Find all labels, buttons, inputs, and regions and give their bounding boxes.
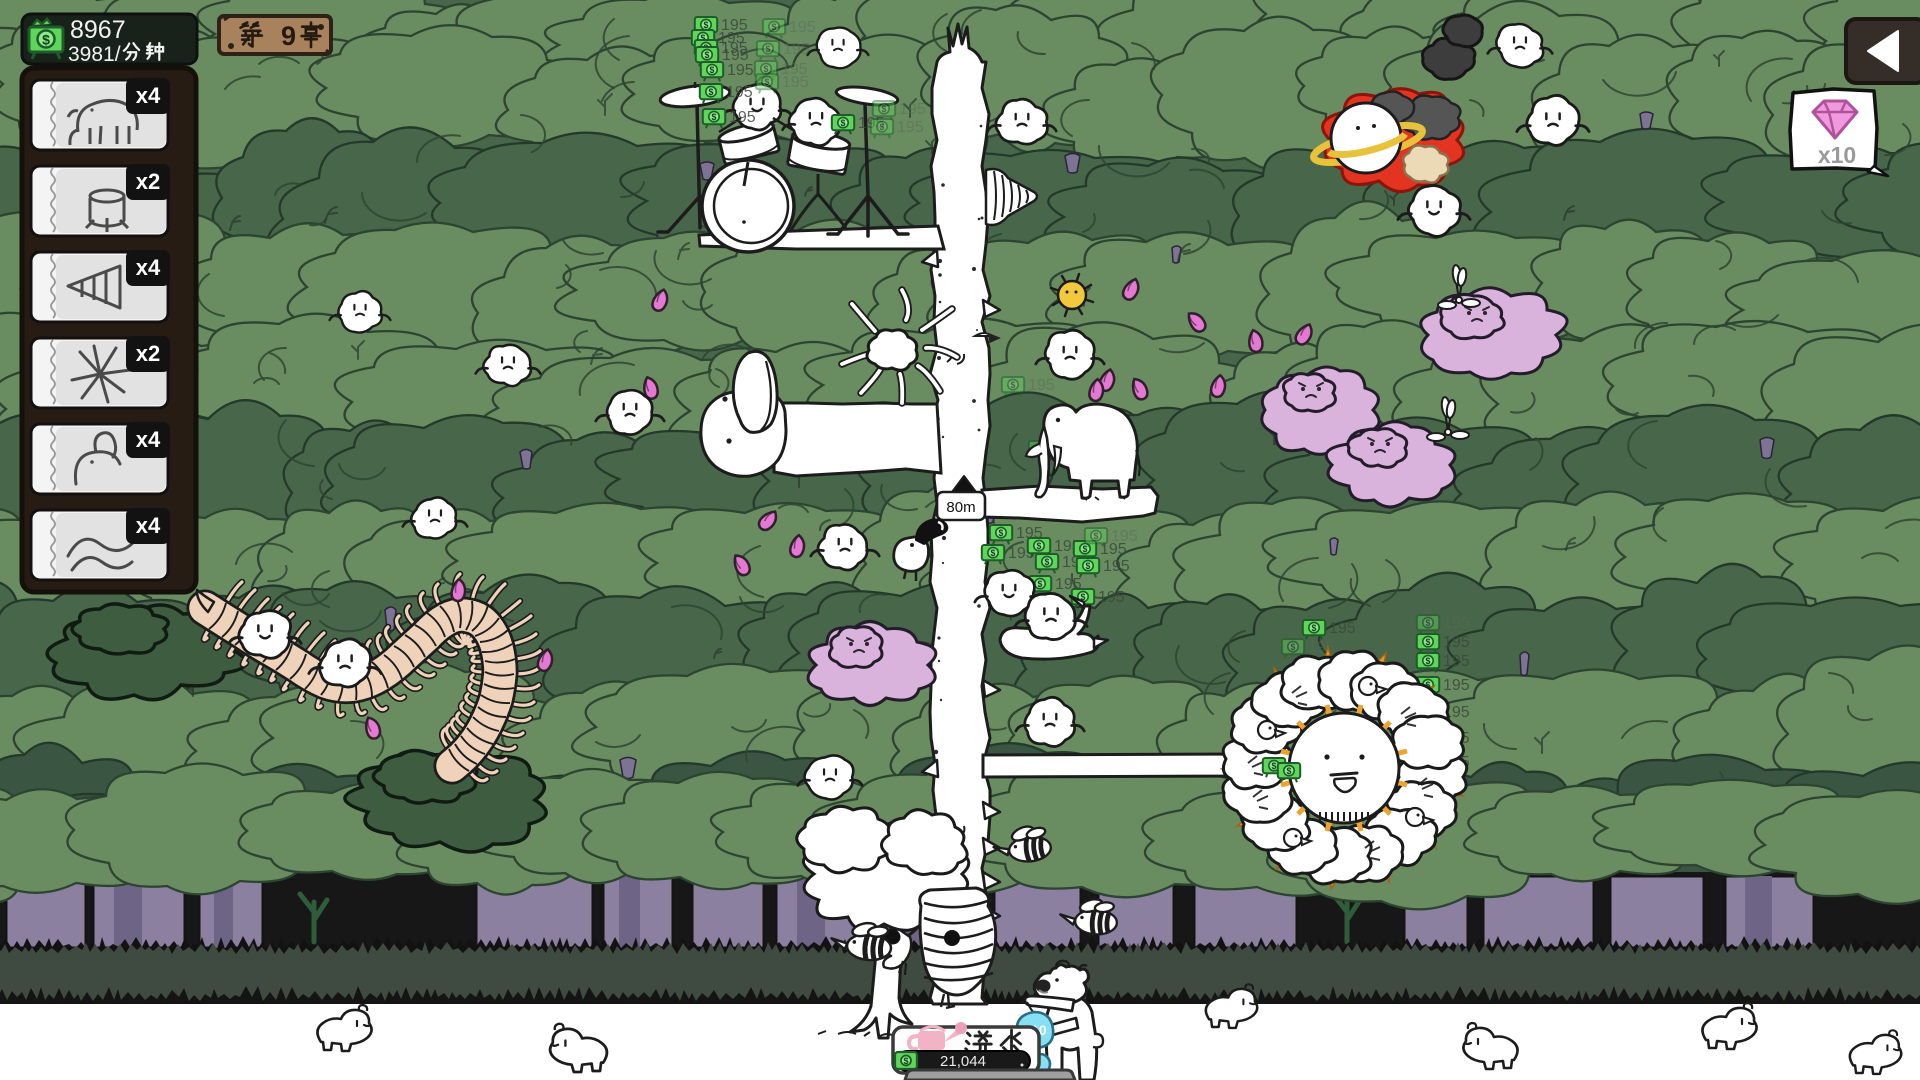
svg-text:$: $ bbox=[1426, 618, 1431, 628]
svg-text:$: $ bbox=[1086, 561, 1091, 571]
svg-text:8967: 8967 bbox=[70, 16, 126, 44]
svg-text:195: 195 bbox=[1443, 615, 1470, 632]
svg-text:$: $ bbox=[766, 44, 771, 54]
svg-text:$: $ bbox=[1037, 541, 1042, 551]
svg-text:21,044: 21,044 bbox=[940, 1053, 986, 1070]
svg-text:$: $ bbox=[1045, 557, 1050, 567]
svg-text:$: $ bbox=[1038, 579, 1043, 589]
svg-text:3981/: 3981/ bbox=[68, 43, 121, 66]
svg-text:$: $ bbox=[1312, 623, 1317, 633]
svg-text:195: 195 bbox=[1443, 634, 1470, 651]
svg-text:195: 195 bbox=[1103, 558, 1130, 575]
svg-text:195: 195 bbox=[1111, 528, 1138, 545]
svg-text:195: 195 bbox=[1443, 677, 1470, 694]
svg-text:195: 195 bbox=[897, 119, 924, 136]
svg-text:$: $ bbox=[1272, 761, 1277, 771]
svg-text:$: $ bbox=[709, 87, 714, 97]
svg-text:$: $ bbox=[1426, 656, 1431, 666]
svg-text:$: $ bbox=[765, 77, 770, 87]
svg-text:$: $ bbox=[1426, 637, 1431, 647]
svg-text:195: 195 bbox=[789, 19, 816, 36]
svg-text:$: $ bbox=[710, 65, 715, 75]
svg-text:195: 195 bbox=[729, 109, 756, 126]
svg-text:x10: x10 bbox=[1818, 142, 1856, 168]
svg-text:195: 195 bbox=[899, 101, 926, 118]
svg-text:$: $ bbox=[999, 528, 1004, 538]
svg-text:195: 195 bbox=[1443, 653, 1470, 670]
svg-text:$: $ bbox=[764, 64, 769, 74]
svg-text:195: 195 bbox=[782, 74, 809, 91]
svg-text:195: 195 bbox=[1308, 639, 1335, 656]
svg-text:195: 195 bbox=[1028, 377, 1055, 394]
svg-text:x2: x2 bbox=[136, 341, 160, 366]
svg-text:80m: 80m bbox=[946, 499, 975, 516]
svg-text:$: $ bbox=[1083, 544, 1088, 554]
svg-text:$: $ bbox=[991, 548, 996, 558]
svg-text:x4: x4 bbox=[136, 427, 161, 452]
svg-text:$: $ bbox=[841, 118, 846, 128]
svg-text:x4: x4 bbox=[136, 513, 161, 538]
svg-text:$: $ bbox=[1287, 766, 1292, 776]
svg-text:$: $ bbox=[704, 20, 709, 30]
svg-text:$: $ bbox=[903, 1056, 908, 1066]
svg-text:9: 9 bbox=[281, 21, 296, 51]
svg-text:$: $ bbox=[880, 122, 885, 132]
svg-text:195: 195 bbox=[726, 84, 753, 101]
svg-text:195: 195 bbox=[727, 62, 754, 79]
svg-text:x4: x4 bbox=[136, 83, 161, 108]
svg-text:$: $ bbox=[882, 104, 887, 114]
svg-text:$: $ bbox=[1291, 642, 1296, 652]
svg-text:$: $ bbox=[772, 22, 777, 32]
svg-text:$: $ bbox=[705, 50, 710, 60]
svg-text:195: 195 bbox=[1329, 620, 1356, 637]
svg-text:195: 195 bbox=[783, 41, 810, 58]
svg-text:x2: x2 bbox=[136, 169, 160, 194]
svg-text:$: $ bbox=[712, 112, 717, 122]
svg-text:195: 195 bbox=[1098, 589, 1125, 606]
svg-text:x4: x4 bbox=[136, 255, 161, 280]
svg-text:$: $ bbox=[1094, 531, 1099, 541]
svg-text:$: $ bbox=[42, 32, 50, 48]
svg-text:$: $ bbox=[1011, 380, 1016, 390]
